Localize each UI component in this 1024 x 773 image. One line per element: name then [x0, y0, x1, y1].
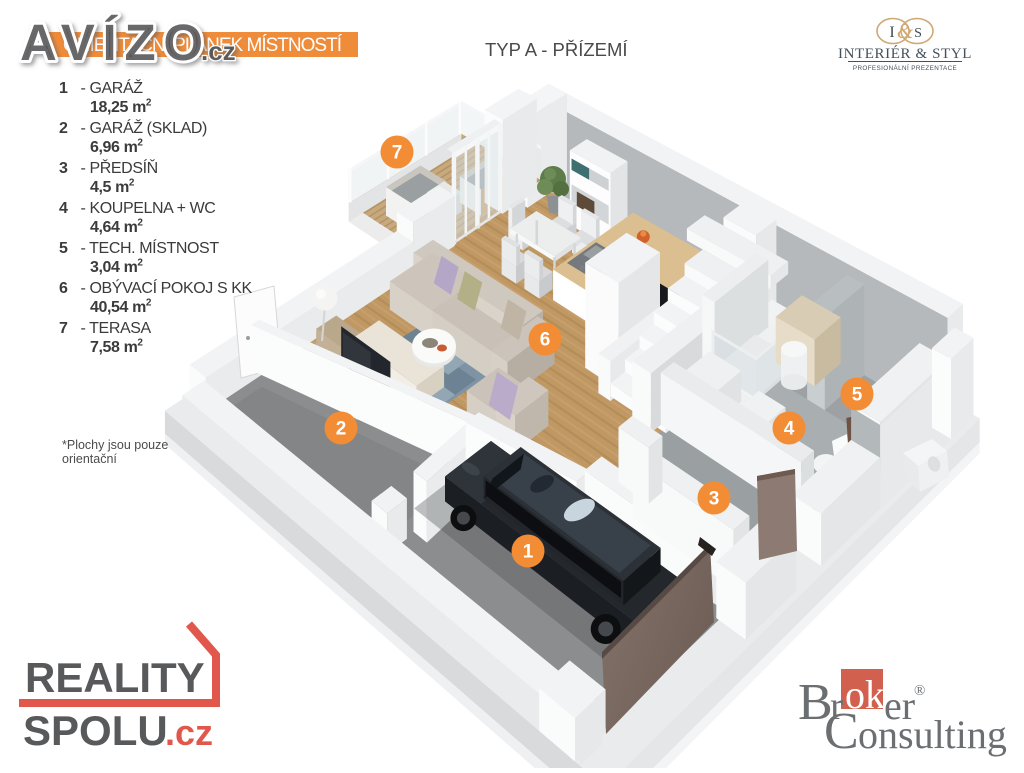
svg-text:2: 2 — [336, 419, 347, 440]
svg-text:INTERIÉR & STYL: INTERIÉR & STYL — [838, 45, 972, 62]
svg-text:3: 3 — [709, 489, 720, 510]
svg-text:5: 5 — [852, 385, 863, 406]
svg-text:&: & — [897, 19, 914, 43]
svg-text:4: 4 — [784, 419, 795, 440]
svg-text:.cz: .cz — [165, 712, 213, 753]
svg-text:PROFESIONÁLNÍ PREZENTACE: PROFESIONÁLNÍ PREZENTACE — [853, 63, 957, 72]
svg-text:.cz: .cz — [201, 36, 236, 66]
svg-text:REALITY: REALITY — [25, 654, 205, 701]
svg-text:onsulting: onsulting — [858, 712, 1007, 757]
svg-text:6: 6 — [540, 330, 551, 351]
svg-text:®: ® — [914, 683, 925, 699]
svg-text:AVÍZO: AVÍZO — [20, 14, 203, 71]
svg-text:SPOLU: SPOLU — [23, 707, 168, 754]
svg-text:1: 1 — [523, 542, 534, 563]
svg-text:I: I — [889, 24, 894, 41]
svg-text:C: C — [824, 703, 859, 760]
svg-text:S: S — [914, 26, 922, 41]
